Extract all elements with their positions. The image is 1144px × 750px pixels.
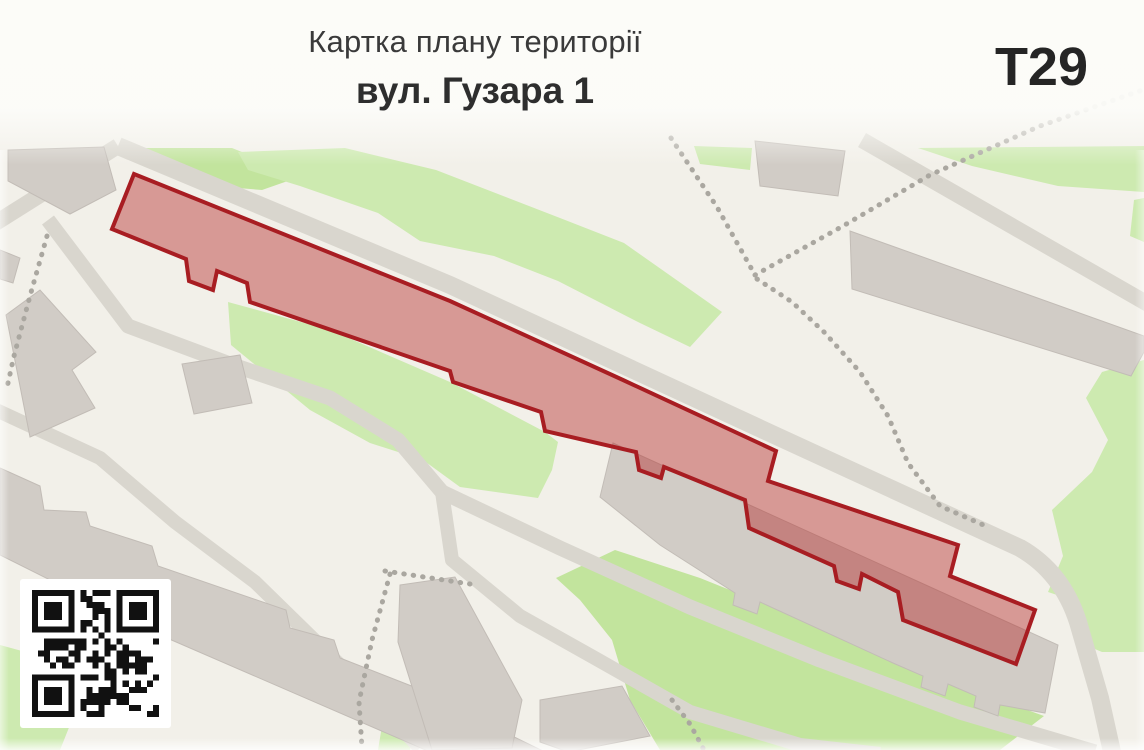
building xyxy=(182,355,252,414)
map xyxy=(0,0,1144,750)
territory-plan-card: Картка плану території вул. Гузара 1 T29 xyxy=(0,0,1144,750)
qr-code-pattern xyxy=(31,590,160,717)
qr-code xyxy=(20,579,171,728)
